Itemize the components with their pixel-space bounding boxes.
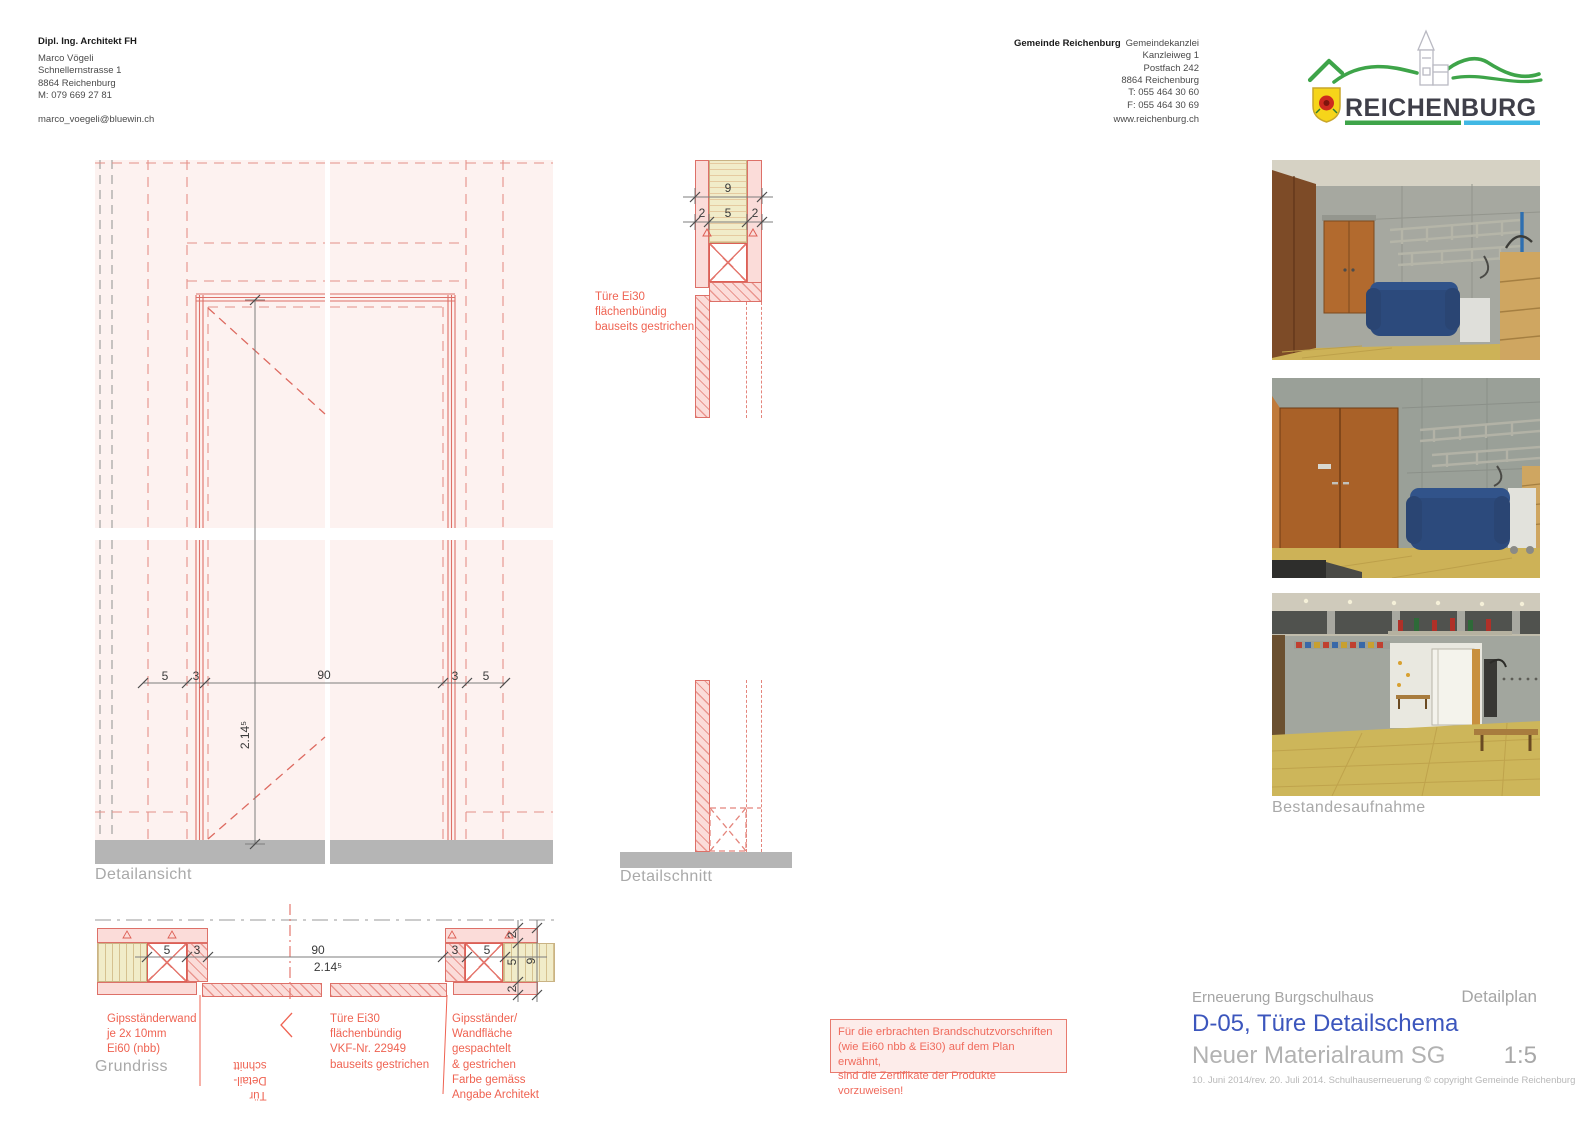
church-icon: [1418, 31, 1448, 85]
plan-sheet: Dipl. Ing. Architekt FH Marco Vögeli Sch…: [0, 0, 1587, 1122]
section-label: Detailschnitt: [620, 868, 712, 886]
revision-line: 10. Juni 2014/rev. 20. Juli 2014. Schulh…: [1192, 1075, 1575, 1086]
project-name: Erneuerung Burgschulhaus: [1192, 989, 1374, 1006]
fire-protection-notice: Für die erbrachten Brandschutzvorschrift…: [830, 1019, 1067, 1073]
dim-label: 90: [317, 668, 330, 682]
dim-label: 5: [162, 669, 169, 683]
architect-address: Marco Vögeli Schnellernstrasse 1 8864 Re…: [38, 53, 154, 102]
dim-label: 2: [505, 932, 519, 939]
sheet-subtitle: Neuer Materialraum SG: [1192, 1042, 1445, 1070]
dim-label: 5: [483, 669, 490, 683]
dim-label: 9: [524, 958, 538, 965]
architect-email: marco_voegeli@bluewin.ch: [38, 114, 154, 126]
dim-label: 5: [484, 943, 491, 957]
plan-drawing: 5 3 90 2.14⁵ 3 5 2 5 2 9 Gipsständerwand…: [85, 900, 575, 1115]
logo-wordmark: REICHENBURG: [1345, 94, 1537, 122]
dim-label: 3: [452, 669, 459, 683]
dim-label: 5: [505, 959, 519, 966]
photo-existing-2: [1272, 378, 1540, 578]
section-drawing: Türe Ei30 flächenbündig bauseits gestric…: [595, 160, 805, 905]
plan-type: Detailplan: [1461, 987, 1537, 1007]
logo-underline-green: [1345, 121, 1461, 126]
dim-label: 2: [699, 206, 706, 220]
plan-wall-note: Gipsständerwand je 2x 10mm Ei60 (nbb): [107, 1012, 197, 1058]
elevation-linework: [95, 160, 553, 866]
architect-title: Dipl. Ing. Architekt FH: [38, 36, 154, 47]
plan-label: Grundriss: [95, 1058, 168, 1076]
elevation-label: Detailansicht: [95, 866, 192, 884]
plan-finish-note: Gipsständer/ Wandfläche gespachtelt & ge…: [452, 1012, 539, 1103]
dim-label: 9: [725, 181, 732, 195]
dim-label: 2: [505, 986, 519, 993]
dim-label: 3: [193, 669, 200, 683]
dim-label: 2: [752, 206, 759, 220]
plan-door-note: Türe Ei30 flächenbündig VKF-Nr. 22949 ba…: [330, 1012, 429, 1073]
dim-label-height: 2.14⁵: [238, 721, 252, 749]
dim-label: 90: [311, 943, 324, 957]
shield-icon: [1313, 88, 1340, 122]
section-linework: [595, 160, 805, 870]
dim-label: 3: [194, 943, 201, 957]
scale-value: 1:5: [1504, 1042, 1537, 1070]
plan-cut-note: Tür Detail- schnitt: [234, 1056, 267, 1102]
elevation-drawing: 5 3 90 3 5 2.14⁵: [95, 160, 553, 872]
reichenburg-logo: REICHENBURG: [1303, 28, 1547, 130]
municipality-address: Gemeindekanzlei Kanzleiweg 1 Postfach 24…: [1059, 38, 1199, 112]
architect-block: Dipl. Ing. Architekt FH Marco Vögeli Sch…: [38, 36, 154, 127]
municipality-website: www.reichenburg.ch: [1059, 114, 1199, 126]
logo-underline-cyan: [1464, 121, 1540, 126]
dim-label: 5: [164, 943, 171, 957]
sheet-title: D-05, Türe Detailschema: [1192, 1010, 1458, 1038]
dim-label: 3: [452, 943, 459, 957]
photos-label: Bestandesaufnahme: [1272, 799, 1426, 817]
dim-label: 5: [725, 206, 732, 220]
photo-existing-3: [1272, 593, 1540, 796]
photo-existing-1: [1272, 160, 1540, 360]
dim-label: 2.14⁵: [314, 960, 342, 974]
